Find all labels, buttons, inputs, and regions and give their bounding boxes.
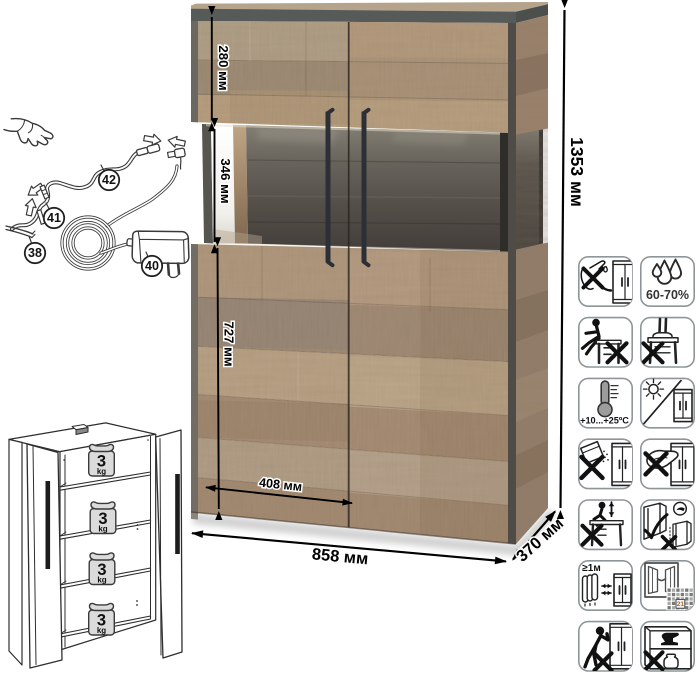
svg-text:≥1м: ≥1м	[582, 563, 600, 574]
svg-text:kg: kg	[98, 524, 107, 533]
svg-text:280 мм: 280 мм	[216, 45, 231, 90]
svg-text:38: 38	[28, 246, 42, 260]
svg-text:42: 42	[102, 173, 116, 187]
svg-text:21: 21	[677, 601, 685, 608]
svg-text:kg: kg	[97, 626, 106, 635]
svg-text:60-70%: 60-70%	[646, 288, 689, 302]
svg-text:346 мм: 346 мм	[218, 158, 233, 203]
svg-text:+10...+25ºC: +10...+25ºC	[580, 416, 629, 426]
svg-text:41: 41	[47, 211, 61, 225]
svg-text:kg: kg	[97, 575, 106, 584]
svg-text:kg: kg	[97, 467, 106, 476]
svg-text:727 мм: 727 мм	[222, 321, 237, 366]
svg-text:40: 40	[145, 259, 159, 273]
svg-text:1353 мм: 1353 мм	[567, 137, 587, 207]
